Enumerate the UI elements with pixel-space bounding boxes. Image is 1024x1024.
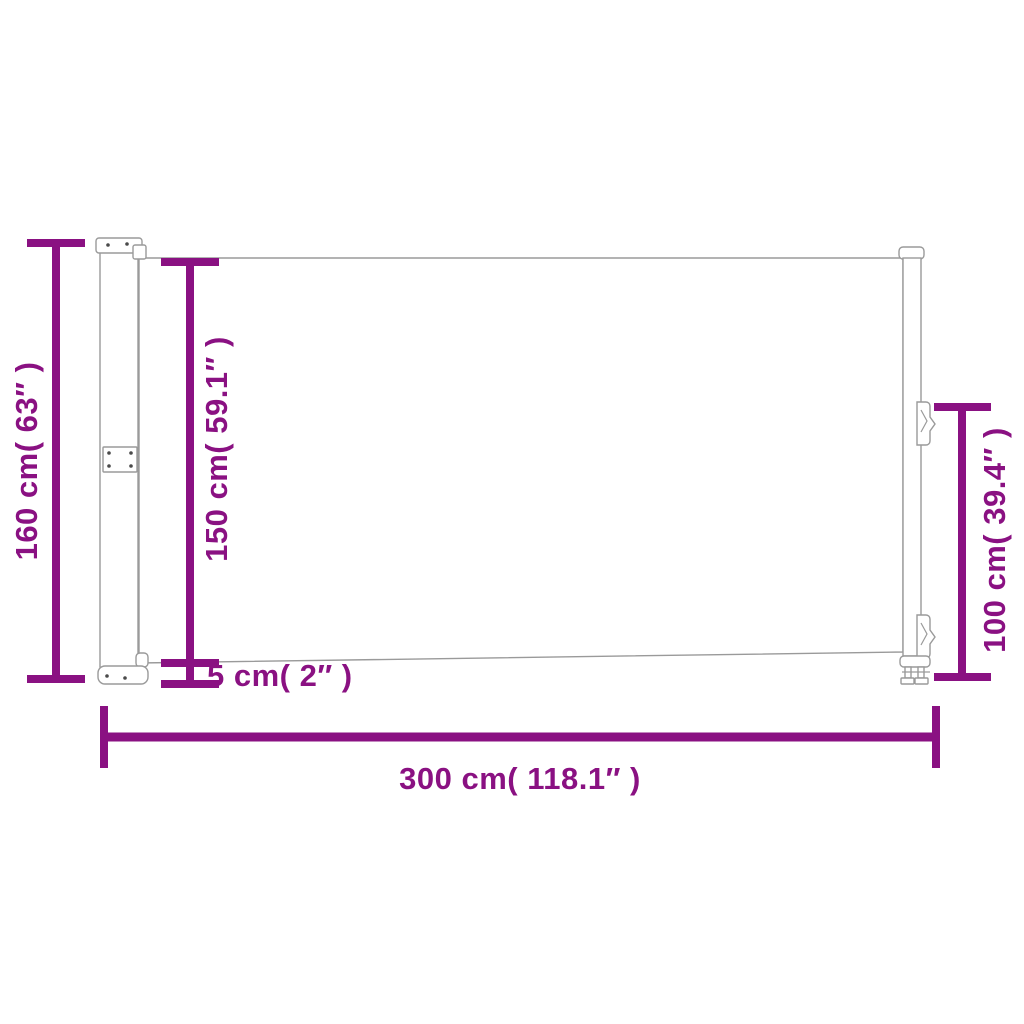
fabric-panel <box>139 258 903 663</box>
post-base-step <box>136 653 148 667</box>
dimension-pole-height: 100 cm( 39.4″ ) <box>934 407 1012 677</box>
dim-label-total-width: 300 cm( 118.1″ ) <box>399 761 641 796</box>
screw-dot <box>123 676 127 680</box>
screw-dot <box>125 242 129 246</box>
diagram-canvas: 160 cm( 63″ ) 150 cm( 59.1″ ) 5 cm( 2″ )… <box>0 0 1024 1024</box>
dimension-total-height: 160 cm( 63″ ) <box>9 243 85 679</box>
post-base-foot <box>98 666 148 684</box>
pole-base-plate <box>900 656 930 667</box>
dim-label-total-height: 160 cm( 63″ ) <box>9 362 44 561</box>
screw-dot <box>129 464 133 468</box>
screw-dot <box>107 464 111 468</box>
awning-fabric <box>139 258 903 663</box>
screw-dot <box>106 243 110 247</box>
dim-label-pole-height: 100 cm( 39.4″ ) <box>977 427 1012 653</box>
pole-foot-pad <box>915 678 928 684</box>
wall-mount-plate <box>103 447 137 472</box>
dim-label-ground-clearance: 5 cm( 2″ ) <box>207 658 353 693</box>
dim-label-fabric-height: 150 cm( 59.1″ ) <box>199 336 234 562</box>
pole-top-cap <box>899 247 924 259</box>
pole-body <box>903 258 921 656</box>
awning-dimension-diagram: 160 cm( 63″ ) 150 cm( 59.1″ ) 5 cm( 2″ )… <box>0 0 1024 1024</box>
right-pull-pole <box>899 247 935 684</box>
screw-dot <box>105 674 109 678</box>
pole-foot-pad <box>901 678 914 684</box>
screw-dot <box>129 451 133 455</box>
dimension-total-width: 300 cm( 118.1″ ) <box>104 706 936 796</box>
screw-dot <box>107 451 111 455</box>
fabric-exit-slot <box>133 245 146 259</box>
